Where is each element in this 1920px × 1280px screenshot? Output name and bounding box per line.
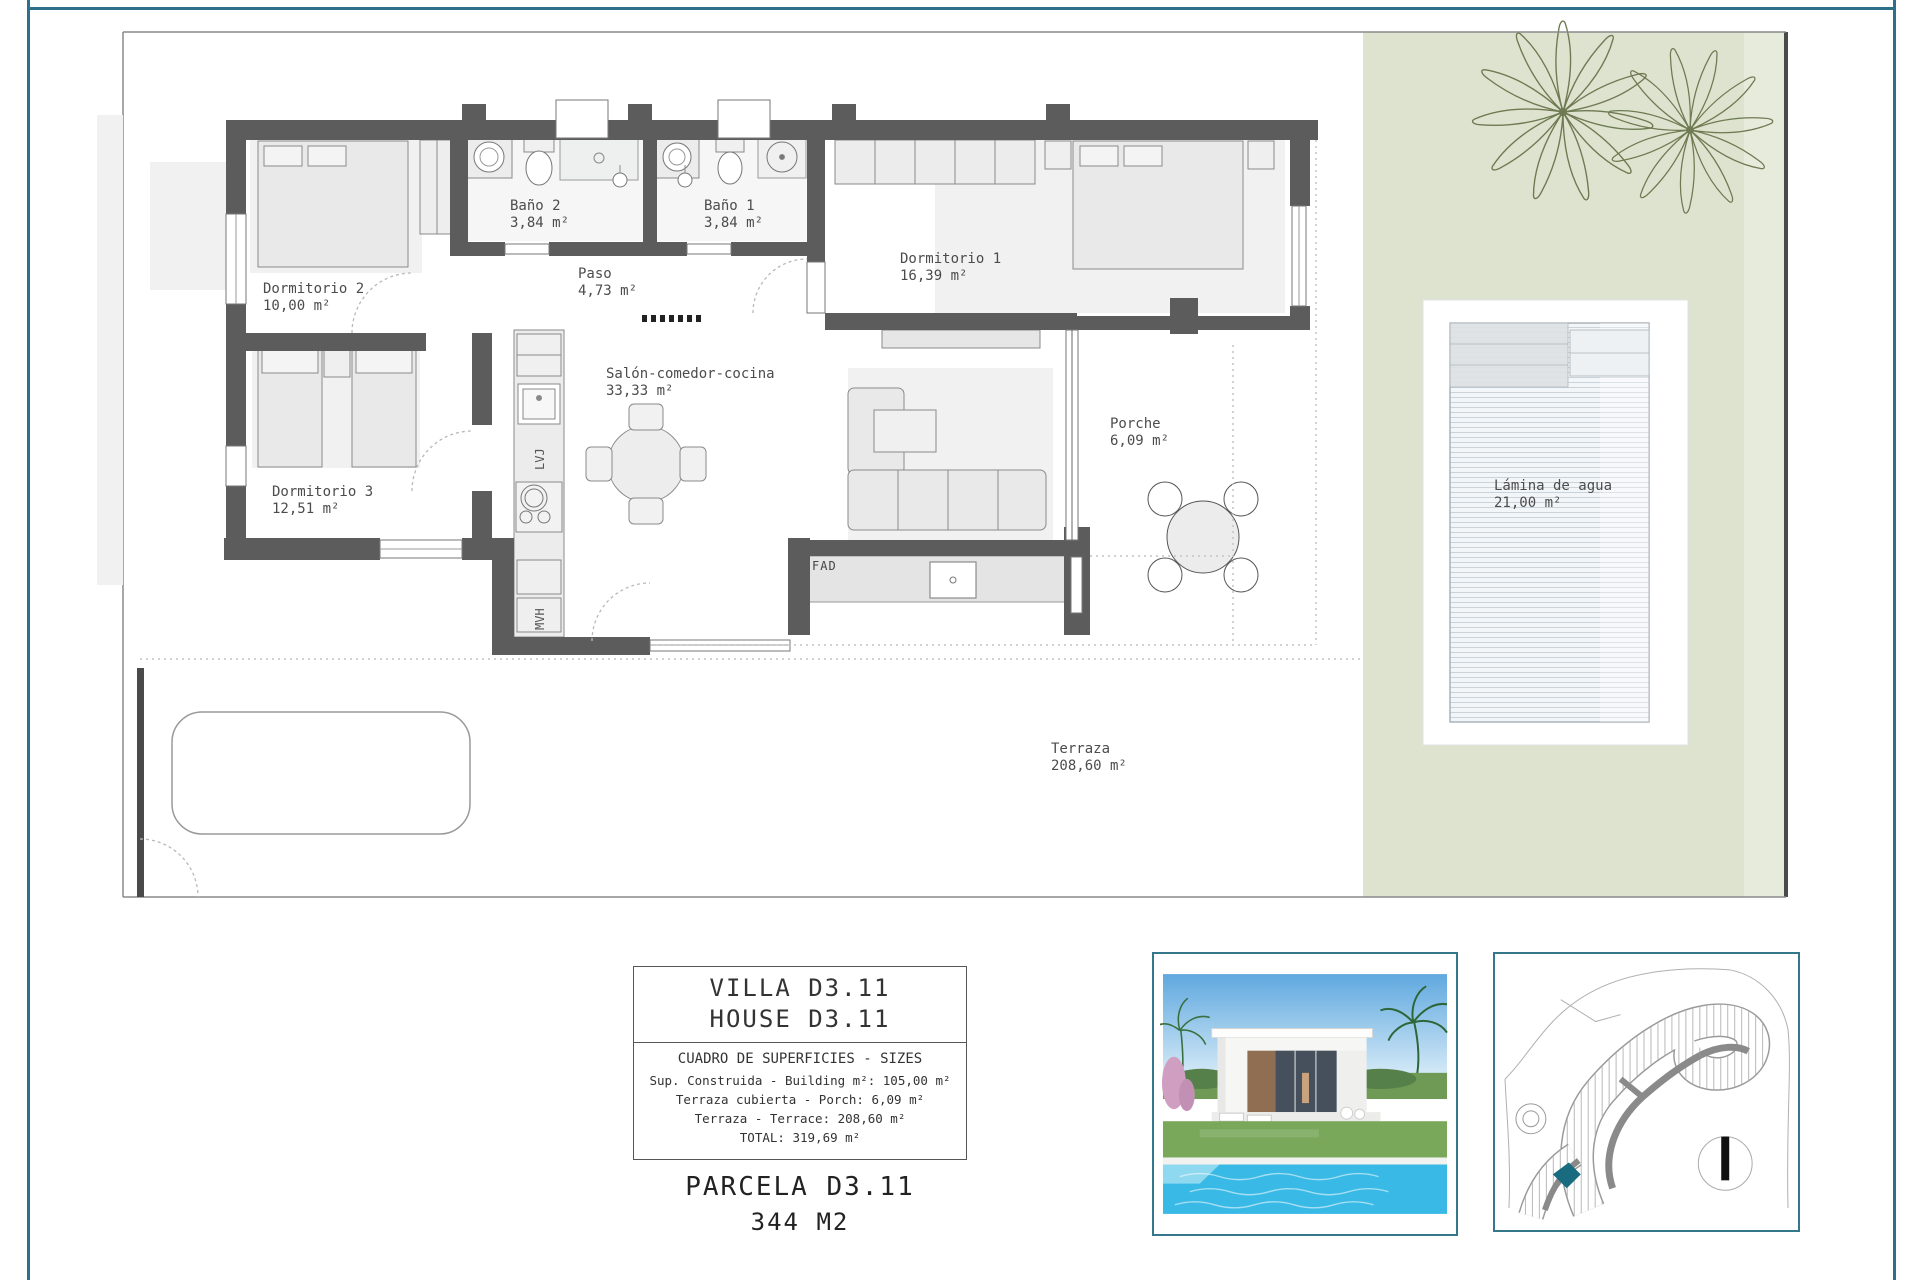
room-label-terraza: Terraza208,60 m²	[1051, 741, 1127, 775]
table-header: CUADRO DE SUPERFICIES - SIZES	[636, 1051, 964, 1067]
washer-label: MVH	[533, 608, 547, 630]
villa-house	[1212, 1029, 1373, 1113]
nightstand	[1248, 141, 1274, 169]
table-row: TOTAL: 319,69 m²	[636, 1130, 964, 1145]
table-row: Terraza - Terrace: 208,60 m²	[636, 1111, 964, 1126]
room-label-bano-2: Baño 23,84 m²	[510, 198, 569, 232]
sofa	[848, 470, 1046, 530]
boundary-fence	[137, 668, 144, 897]
room-label-lamina-de-agua: Lámina de agua21,00 m²	[1494, 478, 1612, 512]
dishwasher	[517, 560, 561, 594]
room-label-dormitorio-1: Dormitorio 116,39 m²	[900, 251, 1001, 285]
room-label-paso: Paso4,73 m²	[578, 266, 637, 300]
floor-grill	[642, 315, 701, 322]
villa-title: VILLA D3.11	[636, 973, 964, 1004]
surface-table: VILLA D3.11 HOUSE D3.11 CUADRO DE SUPERF…	[633, 966, 967, 1160]
villa-photo-illustration	[1160, 960, 1450, 1228]
bbq-label: FAD	[812, 559, 837, 573]
coffee-table	[874, 410, 936, 452]
nightstand	[1045, 141, 1071, 169]
parcel-title: PARCELA D3.11	[633, 1172, 967, 1202]
porch-table-set	[1148, 482, 1258, 592]
site-plan-map	[1501, 960, 1792, 1224]
chair	[680, 447, 706, 481]
house-title: HOUSE D3.11	[636, 1004, 964, 1035]
floor-plan-sheet: Dormitorio 210,00 m² Baño 23,84 m² Baño …	[0, 0, 1920, 1280]
north-indicator	[1698, 1137, 1752, 1191]
swimming-pool	[1423, 300, 1688, 745]
parcel-area: 344 M2	[633, 1208, 967, 1236]
divider	[634, 1042, 966, 1043]
villa-photo-thumbnail	[1152, 952, 1458, 1236]
chair	[629, 404, 663, 430]
chair	[629, 498, 663, 524]
cooktop	[516, 482, 562, 532]
table-row: Sup. Construida - Building m²: 105,00 m²	[636, 1073, 964, 1088]
dining-table	[608, 426, 684, 502]
shower-tray	[560, 136, 638, 180]
dishwasher-label: LVJ	[533, 448, 547, 470]
room-label-bano-1: Baño 13,84 m²	[704, 198, 763, 232]
room-label-porche: Porche6,09 m²	[1110, 416, 1169, 450]
tv-sideboard	[882, 330, 1040, 348]
site-plan-thumbnail	[1493, 952, 1800, 1232]
bbq-sink	[930, 562, 976, 598]
room-label-dormitorio-3: Dormitorio 312,51 m²	[272, 484, 373, 518]
wardrobe	[835, 140, 1035, 184]
washbasin	[474, 142, 504, 172]
chair	[586, 447, 612, 481]
car-outline	[172, 712, 470, 834]
washbasin	[663, 143, 691, 171]
room-label-dormitorio-2: Dormitorio 210,00 m²	[263, 281, 364, 315]
table-row: Terraza cubierta - Porch: 6,09 m²	[636, 1092, 964, 1107]
room-label-salon: Salón-comedor-cocina33,33 m²	[606, 366, 775, 400]
